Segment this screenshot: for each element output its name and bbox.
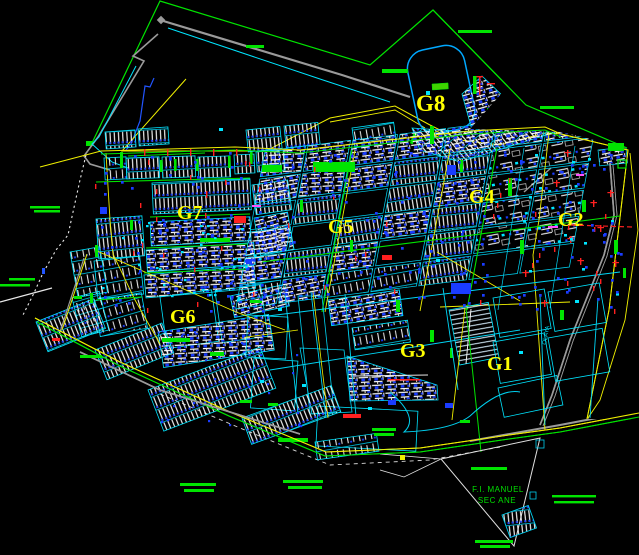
svg-text:G1: G1: [487, 353, 513, 375]
svg-text:G3: G3: [400, 340, 426, 362]
svg-text:G2: G2: [558, 209, 584, 231]
svg-text:G5: G5: [328, 216, 354, 238]
svg-text:G7: G7: [177, 202, 203, 224]
svg-text:G6: G6: [170, 306, 196, 328]
svg-text:G8: G8: [416, 91, 445, 116]
svg-text:F.I. MANUEL: F.I. MANUEL: [472, 485, 524, 494]
svg-text:G4: G4: [469, 186, 495, 208]
svg-text:SEC ANE: SEC ANE: [478, 496, 516, 505]
